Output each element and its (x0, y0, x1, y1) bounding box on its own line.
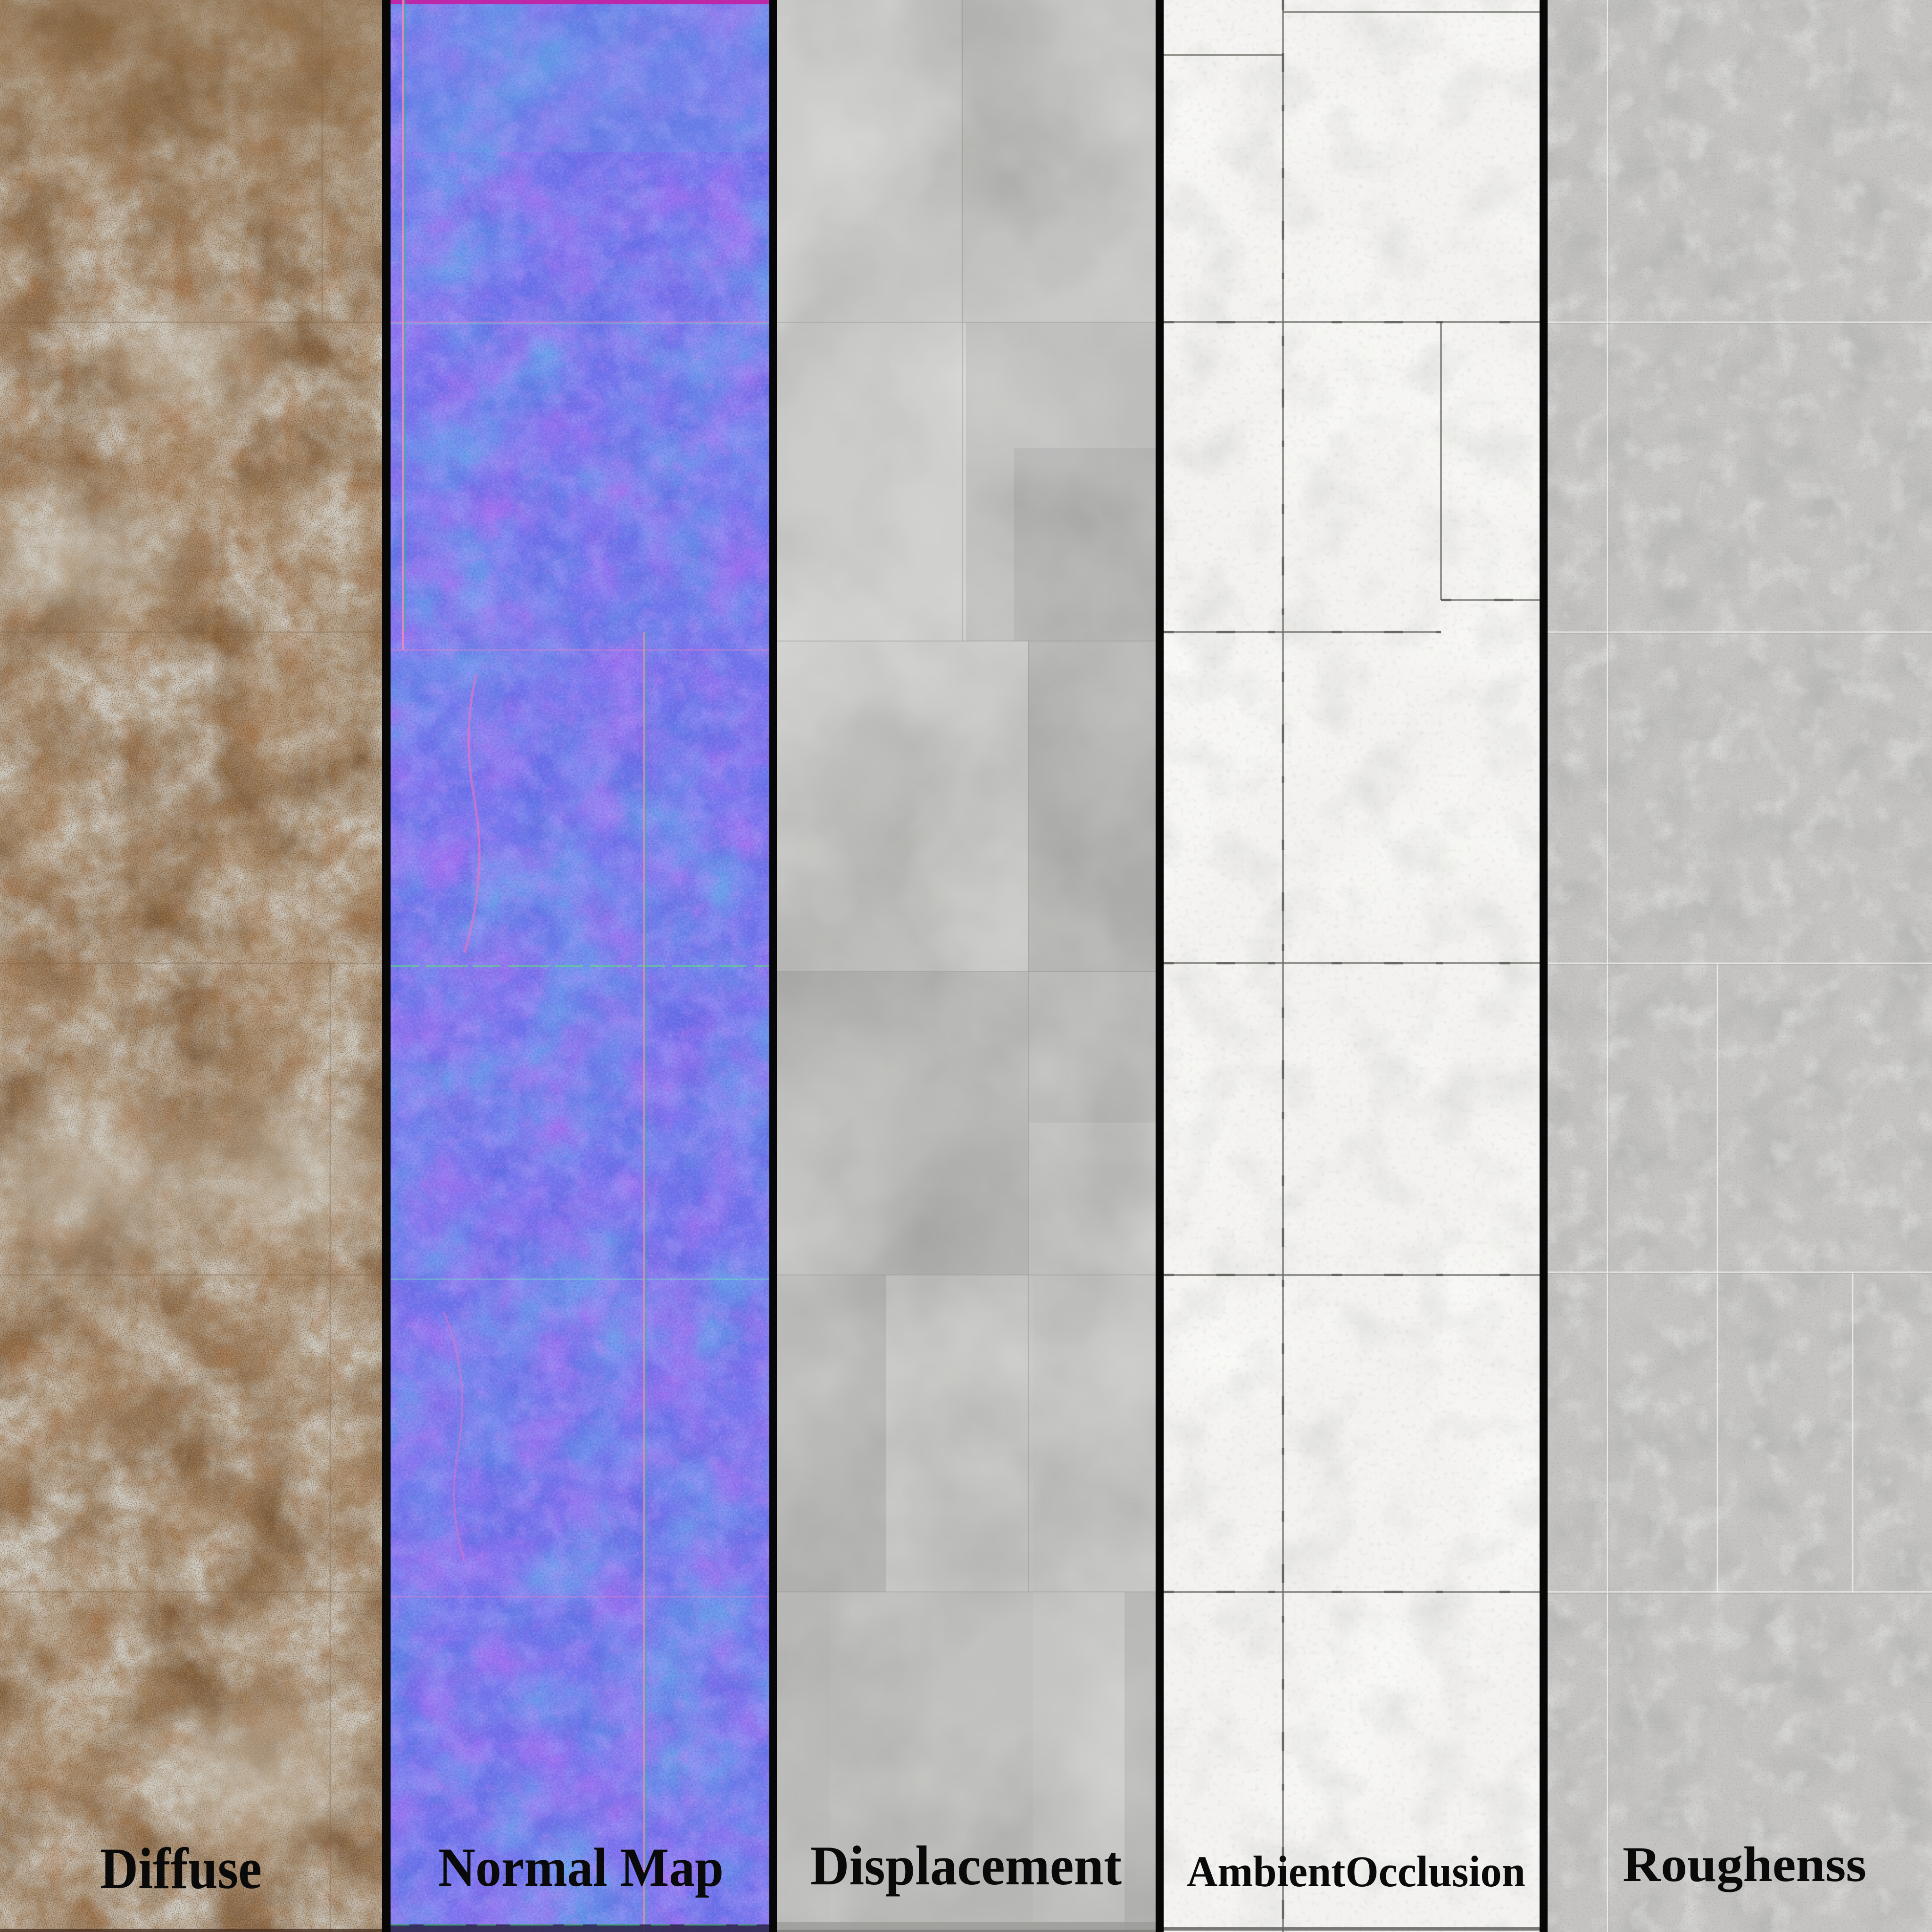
svg-text:Displacement: Displacement (810, 1834, 1122, 1897)
svg-text:AmbientOcclusion: AmbientOcclusion (1187, 1848, 1525, 1896)
svg-text:Roughenss: Roughenss (1623, 1837, 1866, 1892)
svg-text:Normal Map: Normal Map (438, 1837, 724, 1898)
svg-text:Diffuse: Diffuse (100, 1836, 262, 1901)
